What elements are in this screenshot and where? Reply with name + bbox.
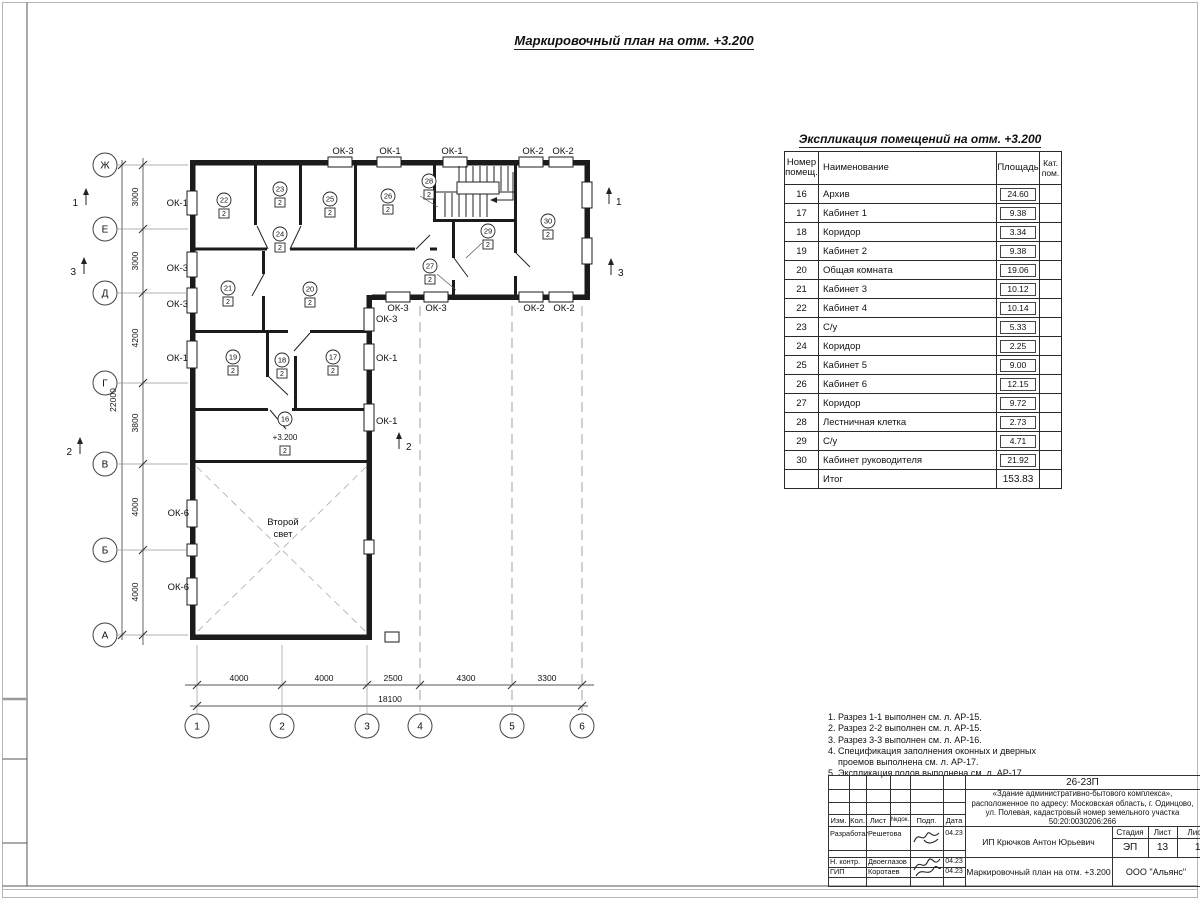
project-address: «Здание административно-бытового комплек… <box>965 790 1200 826</box>
window-type-label: ОК-1 <box>441 146 462 157</box>
axis-bubble: 2 <box>279 722 285 733</box>
table-row: 17Кабинет 19.38 <box>785 204 1062 223</box>
svg-text:2: 2 <box>231 368 235 375</box>
table-row: 24Коридор2.25 <box>785 337 1062 356</box>
explication-title: Экспликация помещений на отм. +3.200 <box>784 132 1056 146</box>
dimension-total-label: 22000 <box>108 388 118 412</box>
table-row: 29С/у4.71 <box>785 432 1062 451</box>
room-marker: 212 <box>221 281 235 306</box>
window-type-label: ОК-1 <box>376 353 397 364</box>
window-type-label: ОК-2 <box>552 146 573 157</box>
svg-text:3: 3 <box>70 267 76 278</box>
dimension-label: 2500 <box>384 673 403 683</box>
table-row: 22Кабинет 410.14 <box>785 299 1062 318</box>
room-marker: 262 <box>381 189 395 214</box>
section-marker: 1 <box>606 187 622 208</box>
window-type-label: ОК-6 <box>168 582 189 593</box>
col-header-category: Кат. пом. <box>1040 152 1062 185</box>
table-row: 16Архив24.60 <box>785 185 1062 204</box>
table-row: 19Кабинет 29.38 <box>785 242 1062 261</box>
stage-value: ЭП <box>1112 838 1148 857</box>
elevation-mark: +3.200 <box>273 433 298 442</box>
col-kol: Кол. <box>849 814 866 826</box>
room-marker: 282 <box>422 174 436 199</box>
signatures <box>910 826 943 887</box>
second-light-label: свет <box>273 529 293 540</box>
sheet-label: Лист <box>1148 827 1177 838</box>
axis-bubble: 1 <box>194 722 200 733</box>
svg-text:2: 2 <box>331 368 335 375</box>
document-title: Маркировочный план на отм. +3.200 <box>965 857 1112 887</box>
col-data: Дата <box>943 814 965 826</box>
svg-text:2: 2 <box>308 300 312 307</box>
svg-text:17: 17 <box>329 353 337 362</box>
dimension-label: 4000 <box>130 497 140 516</box>
dimension-label: 4000 <box>130 582 140 601</box>
col-header-name: Наименование <box>819 152 997 185</box>
window-type-label: ОК-1 <box>376 416 397 427</box>
note-line: проемов выполнена см. л. АР-17. <box>828 757 1036 768</box>
svg-text:1: 1 <box>72 198 78 209</box>
table-row: 28Лестничная клетка2.73 <box>785 413 1062 432</box>
svg-text:25: 25 <box>326 195 334 204</box>
dimension-label: 4300 <box>457 673 476 683</box>
axis-bubble: Г <box>102 379 108 390</box>
project-code: 26-23П <box>965 776 1200 789</box>
window-type-label: ОК-2 <box>523 303 544 314</box>
section-marker: 2 <box>396 432 412 453</box>
svg-text:28: 28 <box>425 177 433 186</box>
window-type-label: ОК-3 <box>167 263 188 274</box>
section-marker: 3 <box>608 258 624 279</box>
svg-text:18: 18 <box>278 356 286 365</box>
table-row: 27Коридор9.72 <box>785 394 1062 413</box>
axis-bubble: Е <box>102 225 109 236</box>
dimension-label: 3800 <box>130 413 140 432</box>
role-gip: ГИП <box>828 868 868 877</box>
doors <box>252 226 530 429</box>
window-type-label: ОК-3 <box>167 299 188 310</box>
axis-bubble: 4 <box>417 722 423 733</box>
windows <box>187 157 592 642</box>
svg-text:2: 2 <box>328 210 332 217</box>
window-type-label: ОК-2 <box>522 146 543 157</box>
table-row: 20Общая комната19.06 <box>785 261 1062 280</box>
svg-text:2: 2 <box>222 211 226 218</box>
table-total-row: Итог153.83 <box>785 470 1062 489</box>
svg-text:2: 2 <box>406 442 412 453</box>
room-marker: 172 <box>326 350 340 375</box>
second-light-cross <box>197 467 366 632</box>
svg-text:2: 2 <box>283 448 287 455</box>
svg-text:2: 2 <box>427 192 431 199</box>
svg-text:2: 2 <box>280 371 284 378</box>
second-light-label: Второй <box>267 517 298 528</box>
window-type-label: ОК-6 <box>168 508 189 519</box>
client-name: ИП Крючков Антон Юрьевич <box>965 826 1112 857</box>
staircase <box>436 166 517 217</box>
note-line: 4. Спецификация заполнения оконных и две… <box>828 746 1036 757</box>
room-marker: 202 <box>303 282 317 307</box>
section-marker: 3 <box>70 257 87 278</box>
col-izm: Изм. <box>828 814 849 826</box>
dimension-label: 3000 <box>130 251 140 270</box>
window-type-label: ОК-3 <box>376 314 397 325</box>
svg-text:2: 2 <box>428 277 432 284</box>
svg-text:16: 16 <box>281 415 289 424</box>
note-line: 1. Разрез 1-1 выполнен см. л. АР-15. <box>828 712 1036 723</box>
date-developer: 04.23 <box>943 828 965 840</box>
table-row: 26Кабинет 612.15 <box>785 375 1062 394</box>
explication-table: Номер помещ. Наименование Площадь Кат. п… <box>784 151 1062 489</box>
svg-text:29: 29 <box>484 227 492 236</box>
svg-text:19: 19 <box>229 353 237 362</box>
walls <box>190 160 590 640</box>
axis-bubble: 6 <box>579 722 585 733</box>
axis-bubble: А <box>102 631 109 642</box>
svg-text:27: 27 <box>426 262 434 271</box>
col-header-number: Номер помещ. <box>785 152 819 185</box>
window-type-label: ОК-3 <box>332 146 353 157</box>
col-list: Лист <box>866 814 890 826</box>
axis-bubble: 3 <box>364 722 370 733</box>
svg-text:22: 22 <box>220 196 228 205</box>
name-developer: Решетова <box>866 828 912 840</box>
room-marker: 232 <box>273 182 287 207</box>
axis-bubble: 5 <box>509 722 515 733</box>
window-type-label: ОК-3 <box>387 303 408 314</box>
title-block: 26-23П«Здание административно-бытового к… <box>828 775 1200 887</box>
section-marker: 1 <box>72 188 89 209</box>
dimension-label: 4000 <box>230 673 249 683</box>
col-header-area: Площадь <box>997 152 1040 185</box>
svg-text:2: 2 <box>486 242 490 249</box>
svg-text:1: 1 <box>616 197 622 208</box>
axis-bubble: Ж <box>100 161 110 172</box>
axis-bubble: Б <box>102 546 109 557</box>
col-podp: Подп. <box>910 814 943 826</box>
window-type-label: ОК-1 <box>379 146 400 157</box>
sheets-total: 17 <box>1177 838 1200 857</box>
notes-list: 1. Разрез 1-1 выполнен см. л. АР-15.2. Р… <box>828 712 1036 780</box>
name-ncontrol: Двоеглазов <box>866 858 912 867</box>
table-row: 30Кабинет руководителя21.92 <box>785 451 1062 470</box>
svg-text:26: 26 <box>384 192 392 201</box>
dimension-total-label: 18100 <box>378 694 402 704</box>
grid-dashed-lines <box>420 306 582 712</box>
room-marker: 292 <box>481 224 495 249</box>
plan-title: Маркировочный план на отм. +3.200 <box>504 33 764 48</box>
svg-text:20: 20 <box>306 285 314 294</box>
room-marker: 242 <box>273 227 287 252</box>
col-ndok: №док. <box>890 814 910 826</box>
name-gip: Коротаев <box>866 868 912 877</box>
window-type-label: ОК-1 <box>167 198 188 209</box>
drawing-sheet: ЖЕДГВБА123456300030004200380040004000220… <box>0 0 1200 900</box>
window-type-label: ОК-2 <box>553 303 574 314</box>
dimension-label: 4000 <box>315 673 334 683</box>
section-marker: 2 <box>66 437 83 458</box>
stage-label: Стадия <box>1112 827 1148 838</box>
table-row: 21Кабинет 310.12 <box>785 280 1062 299</box>
date-ncontrol: 04.23 <box>943 858 965 867</box>
sheets-label: Листов <box>1177 827 1200 838</box>
dimension-label: 3000 <box>130 187 140 206</box>
room-marker: 252 <box>323 192 337 217</box>
note-line: 3. Разрез 3-3 выполнен см. л. АР-16. <box>828 735 1036 746</box>
room-marker: 222 <box>217 193 231 218</box>
room-marker: 302 <box>541 214 555 239</box>
company-name: ООО "Альянс" <box>1112 857 1200 887</box>
svg-text:3: 3 <box>618 268 624 279</box>
room-marker: 192 <box>226 350 240 375</box>
role-developer: Разработал <box>828 828 868 840</box>
date-gip: 04.23 <box>943 868 965 877</box>
dimension-label: 3300 <box>538 673 557 683</box>
dimension-label: 4200 <box>130 328 140 347</box>
sheet-number: 13 <box>1148 838 1177 857</box>
axis-bubble: В <box>102 460 109 471</box>
window-type-label: ОК-1 <box>167 353 188 364</box>
svg-text:23: 23 <box>276 185 284 194</box>
svg-text:30: 30 <box>544 217 552 226</box>
room-marker: 182 <box>275 353 289 378</box>
svg-text:2: 2 <box>278 245 282 252</box>
room-marker: 16+3.2002 <box>273 412 298 455</box>
role-ncontrol: Н. контр. <box>828 858 868 867</box>
svg-text:2: 2 <box>226 299 230 306</box>
window-type-label: ОК-3 <box>425 303 446 314</box>
table-row: 23С/у5.33 <box>785 318 1062 337</box>
svg-text:2: 2 <box>386 207 390 214</box>
table-row: 25Кабинет 59.00 <box>785 356 1062 375</box>
svg-text:2: 2 <box>278 200 282 207</box>
table-row: 18Коридор3.34 <box>785 223 1062 242</box>
room-marker: 272 <box>423 259 437 284</box>
axis-bubble: Д <box>102 289 109 300</box>
note-line: 2. Разрез 2-2 выполнен см. л. АР-15. <box>828 723 1036 734</box>
svg-text:24: 24 <box>276 230 284 239</box>
svg-text:21: 21 <box>224 284 232 293</box>
svg-text:2: 2 <box>546 232 550 239</box>
svg-text:2: 2 <box>66 447 72 458</box>
